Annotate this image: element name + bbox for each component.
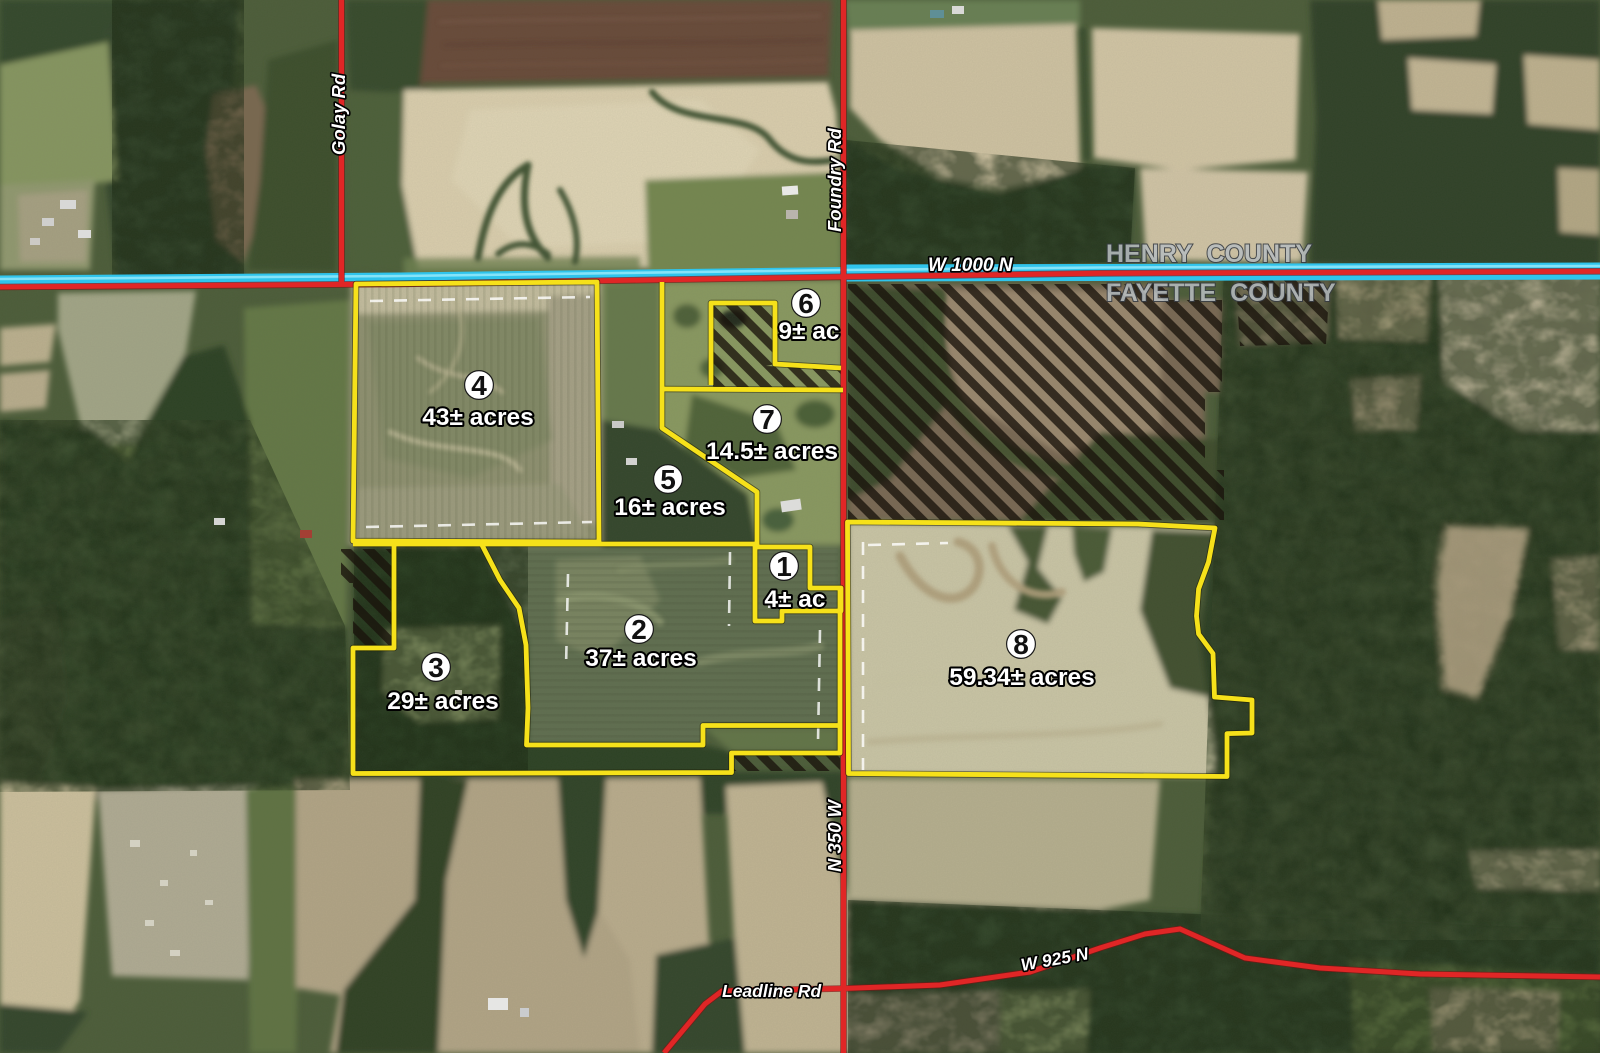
svg-text:3: 3 (428, 652, 444, 683)
svg-text:Foundry Rd: Foundry Rd (824, 128, 845, 232)
svg-text:FAYETTE COUNTY: FAYETTE COUNTY (1106, 279, 1336, 307)
svg-text:6: 6 (798, 288, 814, 319)
svg-text:5: 5 (660, 464, 676, 495)
svg-text:14.5± acres: 14.5± acres (706, 438, 838, 465)
svg-text:43± acres: 43± acres (422, 404, 534, 431)
svg-text:37± acres: 37± acres (585, 645, 697, 672)
svg-text:1: 1 (776, 551, 792, 582)
svg-text:9± ac: 9± ac (778, 318, 839, 345)
svg-text:7: 7 (759, 404, 775, 435)
svg-text:4± ac: 4± ac (764, 586, 825, 613)
svg-text:HENRY COUNTY: HENRY COUNTY (1106, 240, 1312, 268)
svg-text:2: 2 (631, 614, 647, 645)
svg-text:16± acres: 16± acres (614, 494, 726, 521)
svg-text:29± acres: 29± acres (387, 688, 499, 715)
svg-text:Leadline Rd: Leadline Rd (722, 981, 821, 1001)
svg-text:Golay Rd: Golay Rd (328, 73, 349, 155)
svg-text:8: 8 (1013, 629, 1029, 660)
svg-text:N 350 W: N 350 W (824, 798, 845, 872)
svg-text:59.34± acres: 59.34± acres (949, 664, 1095, 691)
svg-text:4: 4 (471, 370, 487, 401)
svg-text:W 1000 N: W 1000 N (928, 255, 1014, 276)
